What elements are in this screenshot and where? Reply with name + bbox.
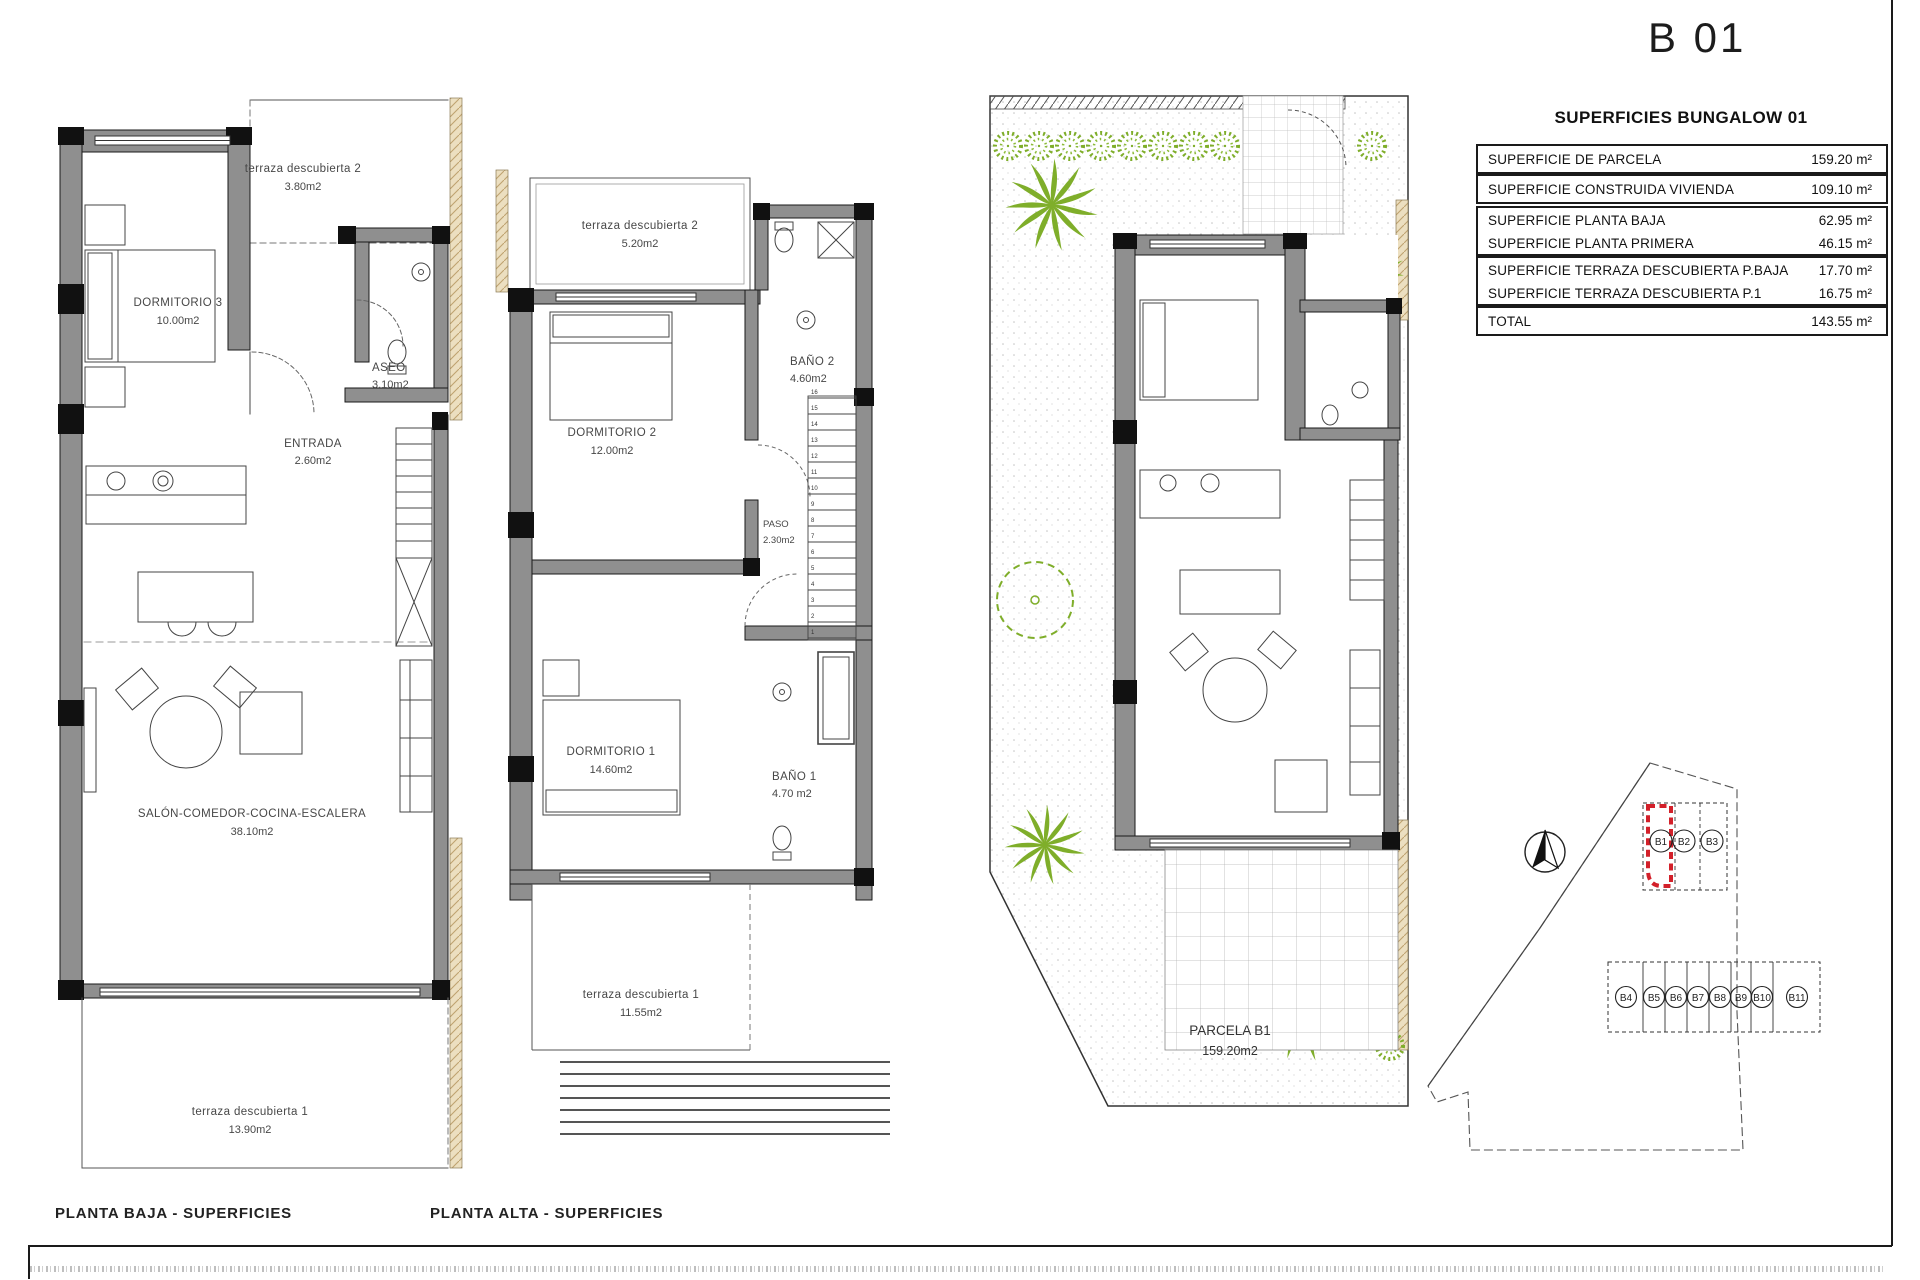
stair-number: 7 [811, 534, 815, 540]
stair-number: 13 [811, 438, 818, 444]
plot-label: B4 [1620, 993, 1633, 1004]
table-title: SUPERFICIES BUNGALOW 01 [1476, 108, 1886, 128]
room-label: SALÓN-COMEDOR-COCINA-ESCALERA [138, 807, 366, 820]
room-area: 11.55m2 [620, 1007, 662, 1019]
party-wall-hatch [450, 98, 462, 420]
row-value: 143.55 m² [1811, 314, 1872, 329]
row-value: 109.10 m² [1811, 182, 1872, 197]
plot-label: B5 [1648, 993, 1661, 1004]
planta-alta-caption: PLANTA ALTA - SUPERFICIES [430, 1205, 663, 1222]
room-area: 14.60m2 [590, 764, 633, 776]
stair-number: 4 [811, 582, 815, 588]
room-label: BAÑO 2 [790, 355, 835, 368]
frame-border-left [28, 1245, 30, 1279]
site-location-map: B1 B2 B3 B4 B5 B6 B7 B8 B9 B10 B11 [1428, 763, 1820, 1150]
stair-number: 8 [811, 518, 815, 524]
table-row-construida: SUPERFICIE CONSTRUIDA VIVIENDA 109.10 m² [1476, 174, 1888, 204]
room-area: 5.20m2 [622, 238, 659, 250]
baja-stairs [396, 428, 432, 646]
stair-number: 10 [811, 486, 818, 492]
plot-label: B3 [1706, 837, 1719, 848]
stair-number: 5 [811, 566, 815, 572]
room-area: 3.80m2 [285, 181, 322, 193]
plot-label: B6 [1670, 993, 1683, 1004]
table-row-parcela: SUPERFICIE DE PARCELA 159.20 m² [1476, 144, 1888, 174]
stair-number: 6 [811, 550, 815, 556]
row-value: 17.70 m² [1819, 263, 1872, 278]
plan-sheet: terraza descubierta 2 3.80m2 DORMITORIO … [0, 0, 1920, 1280]
room-label: DORMITORIO 3 [134, 297, 223, 309]
room-label: terraza descubierta 2 [245, 163, 361, 175]
row-value: 16.75 m² [1819, 286, 1872, 301]
room-area: 10.00m2 [157, 315, 200, 327]
room-label: terraza descubierta 1 [583, 989, 699, 1001]
plot-label: B8 [1714, 993, 1727, 1004]
north-arrow-icon [1525, 830, 1565, 872]
plot-label: B2 [1678, 837, 1691, 848]
row-value: 46.15 m² [1819, 236, 1872, 251]
row-label: SUPERFICIE PLANTA PRIMERA [1488, 236, 1694, 251]
room-label: DORMITORIO 2 [568, 427, 657, 439]
stair-number: 14 [811, 422, 818, 428]
row-label: TOTAL [1488, 314, 1531, 329]
row-value: 62.95 m² [1819, 213, 1872, 228]
parcela-label: PARCELA B1 [1189, 1023, 1271, 1038]
room-label: PASO [763, 519, 789, 530]
planta-baja-caption: PLANTA BAJA - SUPERFICIES [55, 1205, 292, 1222]
plot-labels-bottom [1616, 987, 1808, 1008]
entry-path [1243, 96, 1343, 234]
room-label: DORMITORIO 1 [567, 746, 656, 758]
stair-number: 9 [811, 502, 815, 508]
stair-number: 12 [811, 454, 818, 460]
plot-label: B9 [1735, 993, 1748, 1004]
row-label: SUPERFICIE TERRAZA DESCUBIERTA P.BAJA [1488, 263, 1788, 278]
row-label: SUPERFICIE CONSTRUIDA VIVIENDA [1488, 182, 1734, 197]
room-area: 2.30m2 [763, 535, 795, 546]
plot-label: B1 [1655, 837, 1668, 848]
room-area: 13.90m2 [229, 1124, 272, 1136]
room-label: ENTRADA [284, 438, 342, 450]
parcela-plan: PARCELA B1 159.20m2 [990, 96, 1408, 1106]
room-label: terraza descubierta 1 [192, 1106, 308, 1118]
room-area: 2.60m2 [295, 455, 332, 467]
row-value: 159.20 m² [1811, 152, 1872, 167]
fineprint-strip [30, 1266, 1885, 1272]
room-area: 38.10m2 [231, 826, 274, 838]
stair-number: 3 [811, 598, 815, 604]
room-area: 4.70 m2 [772, 788, 812, 800]
row-label: SUPERFICIE TERRAZA DESCUBIERTA P.1 [1488, 286, 1762, 301]
alta-stairs: 12345678910111213141516 [808, 390, 856, 640]
stair-number: 15 [811, 406, 818, 412]
row-label: SUPERFICIE PLANTA BAJA [1488, 213, 1665, 228]
room-area: 12.00m2 [591, 445, 634, 457]
table-row-terrazas: SUPERFICIE TERRAZA DESCUBIERTA P.BAJA 17… [1476, 256, 1888, 306]
parcela-area: 159.20m2 [1202, 1044, 1258, 1058]
room-label: ASEO [372, 362, 406, 374]
row-label: SUPERFICIE DE PARCELA [1488, 152, 1662, 167]
sheet-code: B 01 [1648, 14, 1746, 62]
frame-border-right [1891, 0, 1893, 1246]
table-row-plantas: SUPERFICIE PLANTA BAJA 62.95 m² SUPERFIC… [1476, 206, 1888, 256]
room-label: terraza descubierta 2 [582, 220, 698, 232]
stair-number: 16 [811, 390, 818, 396]
room-area: 4.60m2 [790, 373, 827, 385]
planta-alta-plan: 12345678910111213141516 terraza descubie… [496, 170, 890, 1134]
plot-label: B7 [1692, 993, 1705, 1004]
room-area: 3.10m2 [372, 379, 409, 391]
table-row-total: TOTAL 143.55 m² [1476, 306, 1888, 336]
plot-label: B10 [1753, 993, 1771, 1004]
stair-number: 2 [811, 614, 815, 620]
party-wall-hatch [450, 838, 462, 1168]
plot-label: B11 [1788, 993, 1805, 1004]
pergola-lines [560, 1062, 890, 1134]
planta-baja-plan: terraza descubierta 2 3.80m2 DORMITORIO … [58, 98, 462, 1168]
room-label: BAÑO 1 [772, 770, 817, 783]
frame-border-bottom [28, 1245, 1892, 1247]
stair-number: 11 [811, 470, 818, 476]
terrace-tiles [1165, 850, 1398, 1050]
party-wall-hatch [496, 170, 508, 292]
